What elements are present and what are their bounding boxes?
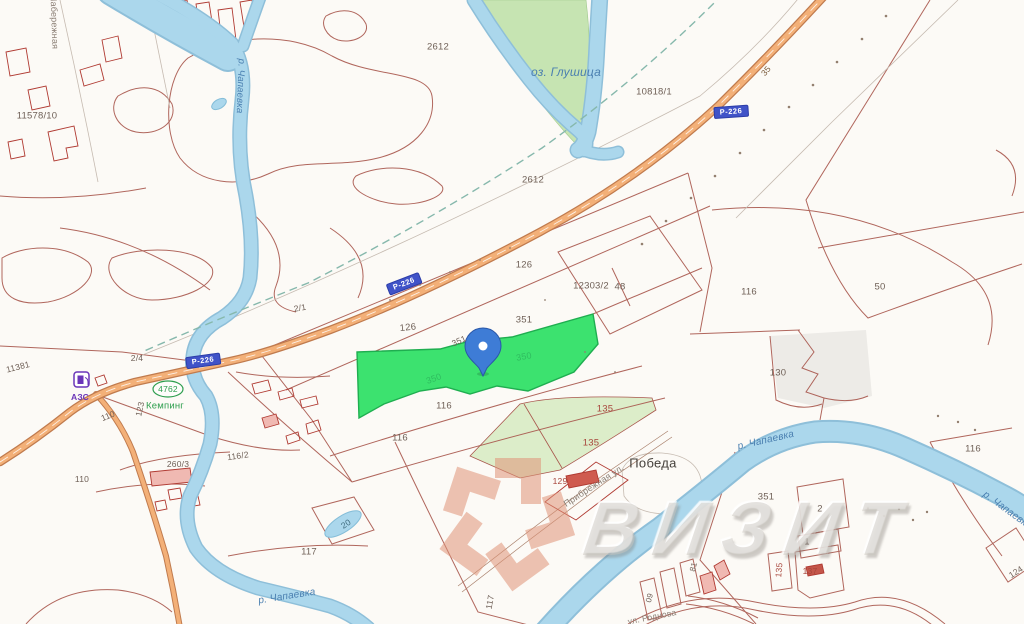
parcel-label-50: 50	[875, 282, 886, 292]
parcel-label-48: 48	[615, 282, 626, 292]
parcel-label-12303-2: 12303/2	[573, 281, 609, 291]
river-label: р. Чапаевка	[234, 58, 245, 113]
parcel-label-2612: 2612	[427, 42, 449, 52]
parcel-label-116: 116	[436, 401, 452, 411]
parcel-label-116: 116	[741, 287, 757, 297]
parcel-label-10818-1: 10818/1	[636, 87, 672, 97]
settlement-label-pobeda: Победа	[629, 457, 676, 470]
poi-code-camping: 4762	[158, 385, 178, 394]
parcel-label-11578-10: 11578/10	[17, 111, 58, 121]
parcel-label-126: 126	[516, 260, 532, 270]
cadastral-map[interactable]: Набережная р. Чапаевка оз. Глушица Побед…	[0, 0, 1024, 624]
parcel-label-129: 129	[553, 477, 568, 486]
parcel-label-130: 130	[770, 368, 786, 378]
parcel-label-110: 110	[75, 475, 89, 484]
poi-label-camping: Кемпинг	[146, 401, 184, 411]
parcel-label-116: 116	[392, 433, 408, 443]
parcel-label-126: 126	[399, 322, 416, 333]
parcel-label-117: 117	[301, 547, 317, 557]
parcel-label-260-3: 260/3	[167, 460, 189, 469]
parcel-label-135: 135	[583, 438, 599, 448]
parcel-label-351: 351	[516, 315, 532, 325]
parcel-label-135: 135	[597, 404, 613, 414]
fuel-station-icon	[74, 372, 89, 387]
parcel-label-117: 117	[485, 594, 496, 609]
parcel-label-2-1: 2/1	[293, 303, 307, 314]
pond-small	[210, 96, 228, 112]
street-label-naberezhnaya: Набережная	[49, 0, 60, 49]
parcel-label-2-4: 2/4	[131, 354, 143, 363]
parcel-label-2612: 2612	[522, 175, 544, 185]
watermark-text: ВИЗИТ	[580, 492, 920, 568]
poi-label-fuel-station: АЗС	[71, 393, 89, 402]
parcel-label-116: 116	[965, 444, 981, 454]
lake-label: оз. Глушица	[531, 66, 601, 78]
